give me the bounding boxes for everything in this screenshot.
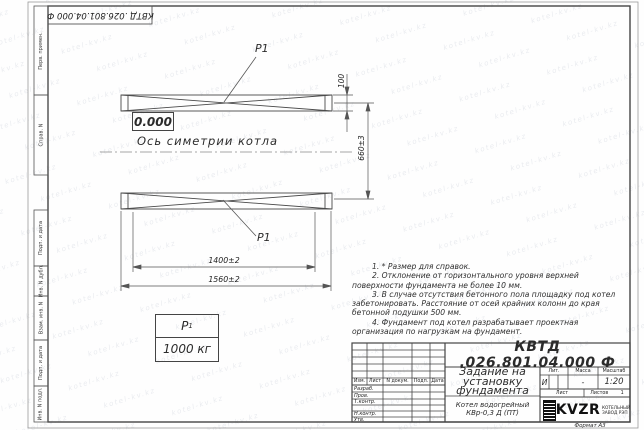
rev-header-data: Дата: [430, 378, 445, 385]
note-item: 4. Фундамент под котел разрабатывает про…: [352, 318, 624, 337]
rev-header-ndokum: N докум.: [383, 378, 412, 385]
sign-row-razrab: Разраб.: [352, 385, 385, 392]
rev-header-izm: Изм.: [352, 378, 367, 385]
sheets-cell: Листов 1: [584, 389, 630, 397]
load-value: 1000 кг: [156, 338, 218, 360]
note-item: 2. Отклонение от горизонтального уровня …: [352, 271, 624, 290]
title-block-product: Котел водогрейный КВр-0,3 Д (ПТ): [446, 397, 539, 421]
dim-overall-length-text: 1560±2: [189, 274, 259, 285]
top-stamp-text: КВТД .026.801.04.000 Ф: [47, 10, 154, 20]
p1-top-label: Р1: [255, 42, 275, 55]
mass-label: Масса: [568, 367, 598, 375]
margin-label-vzam-inv-n: Взам. инв. N: [34, 296, 48, 340]
dim-bar-spacing-text: 660±3: [355, 128, 367, 168]
note-item: 3. В случае отсутствия бетонного пола пл…: [352, 290, 624, 318]
load-symbol: Р1: [156, 315, 218, 338]
logo-sub-line-2: ЗАВОД РЭП: [602, 411, 630, 417]
sheets-value: 1: [621, 391, 624, 396]
rev-header-list: Лист: [367, 378, 383, 385]
title-block-title: Задание на установку фундамента: [446, 368, 539, 395]
bottom-foundation-bar: [121, 193, 332, 209]
sheet-label: Лист: [540, 389, 584, 397]
p1-bottom-leader: [223, 200, 256, 236]
mass-value: -: [568, 375, 598, 389]
load-table: Р1 1000 кг: [155, 314, 219, 362]
format-label: Формат А3: [555, 422, 625, 429]
dim-inner-length-text: 1400±2: [189, 255, 259, 266]
margin-label-perv-primen: Перв. примен.: [34, 6, 48, 95]
product-line-1: Котел водогрейный: [456, 401, 530, 410]
dim-bar-spacing: [334, 103, 374, 199]
drawing-sheet: kotel-kv.kz kotel-kv.kz kotel-kv.kz kote…: [0, 0, 644, 430]
margin-label-podp-i-data-1: Подп. и дата: [34, 210, 48, 266]
sheets-label: Листов: [590, 391, 608, 396]
product-line-2: КВр-0,3 Д (ПТ): [466, 409, 519, 418]
top-stamp: КВТД .026.801.04.000 Ф: [48, 6, 152, 24]
sign-row-prov: Пров.: [352, 392, 385, 399]
kvzr-logo-text: KVZR: [555, 399, 601, 420]
dim-bar-width-text: 100: [335, 70, 347, 92]
lit-value: И: [540, 375, 549, 389]
sign-row-utv: Утв.: [352, 417, 385, 422]
lit-label: Лит.: [540, 367, 568, 375]
p1-bottom-label: Р1: [257, 231, 277, 244]
notes-block: 1. * Размер для справок. 2. Отклонение о…: [352, 262, 624, 336]
margin-label-sprav-n: Справ. N: [34, 95, 48, 175]
title-block-doc-number: КВТД .026.801.04.000 Ф: [445, 344, 630, 366]
margin-label-inv-n-dubl: Инв. N дубл.: [34, 266, 48, 296]
axis-label: Ось симетрии котла: [137, 134, 297, 148]
sign-row-tkontr: Т.контр.: [352, 399, 385, 405]
scale-value: 1:20: [598, 375, 630, 389]
margin-label-inv-n-podl: Инв. N подл.: [34, 386, 48, 422]
elevation-mark: 0.000: [132, 112, 174, 131]
rev-header-podp: Подп.: [412, 378, 430, 385]
note-item: 1. * Размер для справок.: [352, 262, 624, 271]
top-foundation-bar: [121, 95, 332, 111]
margin-label-podp-i-data-2: Подп. и дата: [34, 340, 48, 386]
scale-label: Масштаб: [598, 367, 630, 375]
kvzr-logo-subtext: КОТЕЛЬНЫЙ ЗАВОД РЭП: [602, 402, 630, 420]
